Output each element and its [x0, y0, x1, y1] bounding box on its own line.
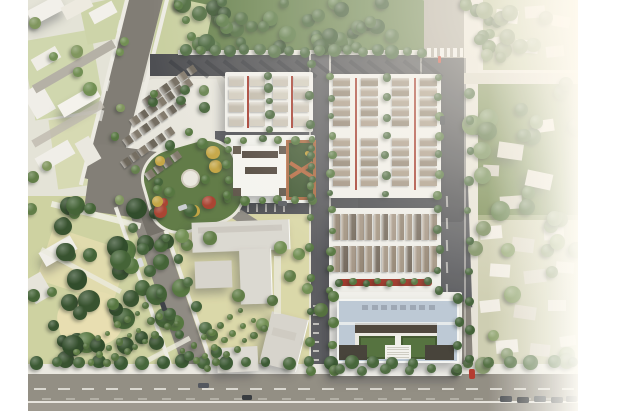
warm-tint-overlay	[28, 0, 578, 411]
masterplan-aerial-render	[28, 0, 578, 411]
page-background	[0, 0, 625, 420]
